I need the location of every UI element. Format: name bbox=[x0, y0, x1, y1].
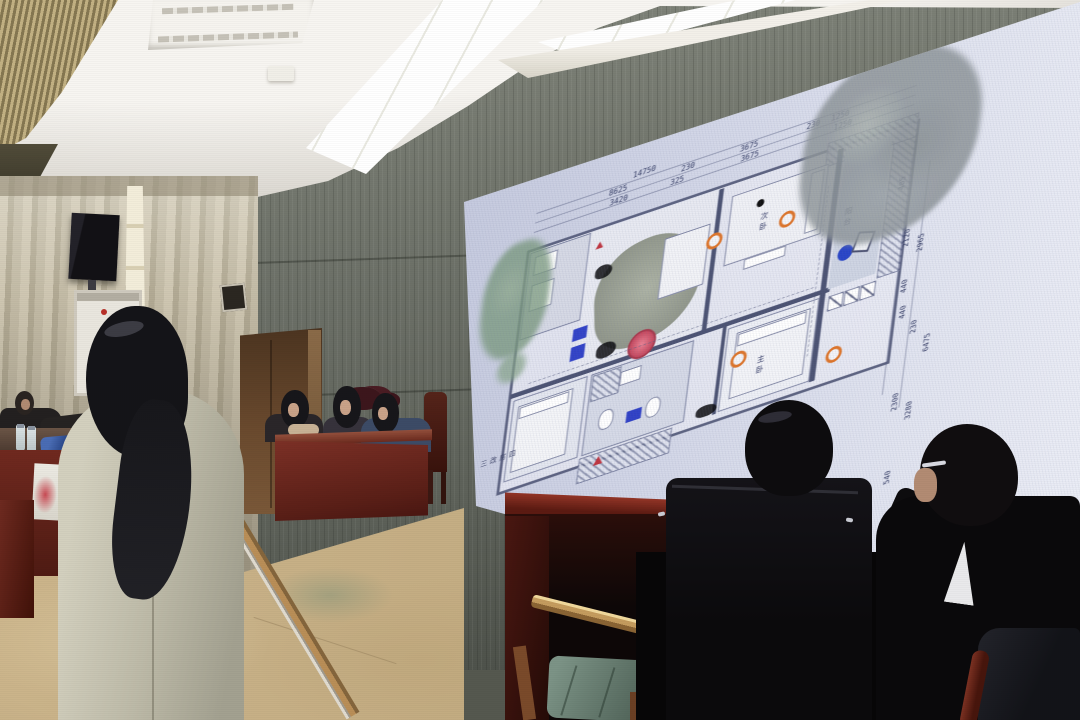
water-bottle bbox=[27, 426, 36, 453]
audience-man-right-hand bbox=[914, 468, 937, 502]
audience-chair-center bbox=[666, 478, 872, 720]
lecture-hall-photo: 14750 8625 3420 230 325 3675 3675 230 12… bbox=[0, 0, 1080, 720]
panelist-1-face bbox=[288, 403, 299, 417]
ceiling-sensor bbox=[268, 66, 294, 81]
ac-vent-slot bbox=[162, 4, 294, 15]
wall-speaker bbox=[68, 213, 119, 281]
cushion-seam bbox=[560, 665, 577, 715]
board-logo-dot bbox=[101, 309, 107, 315]
cushion-seam bbox=[598, 667, 615, 717]
left-desk-corner bbox=[0, 500, 34, 618]
chair-highlight bbox=[846, 518, 853, 523]
chair-leg bbox=[428, 470, 433, 504]
chair-leg bbox=[441, 472, 446, 504]
bottle-cap bbox=[17, 424, 24, 428]
ac-vent-slot bbox=[158, 32, 298, 43]
air-conditioner-cassette bbox=[148, 0, 314, 50]
wall-plaque bbox=[220, 283, 248, 312]
seated-man-left-face bbox=[21, 399, 30, 410]
water-bottle bbox=[16, 424, 25, 451]
jury-desk bbox=[275, 441, 428, 521]
board-top-strip bbox=[77, 293, 139, 301]
panelist-3-face bbox=[378, 407, 388, 420]
bottle-cap bbox=[28, 426, 35, 430]
panelist-2-face bbox=[340, 400, 351, 415]
leather-chair bbox=[978, 628, 1080, 720]
